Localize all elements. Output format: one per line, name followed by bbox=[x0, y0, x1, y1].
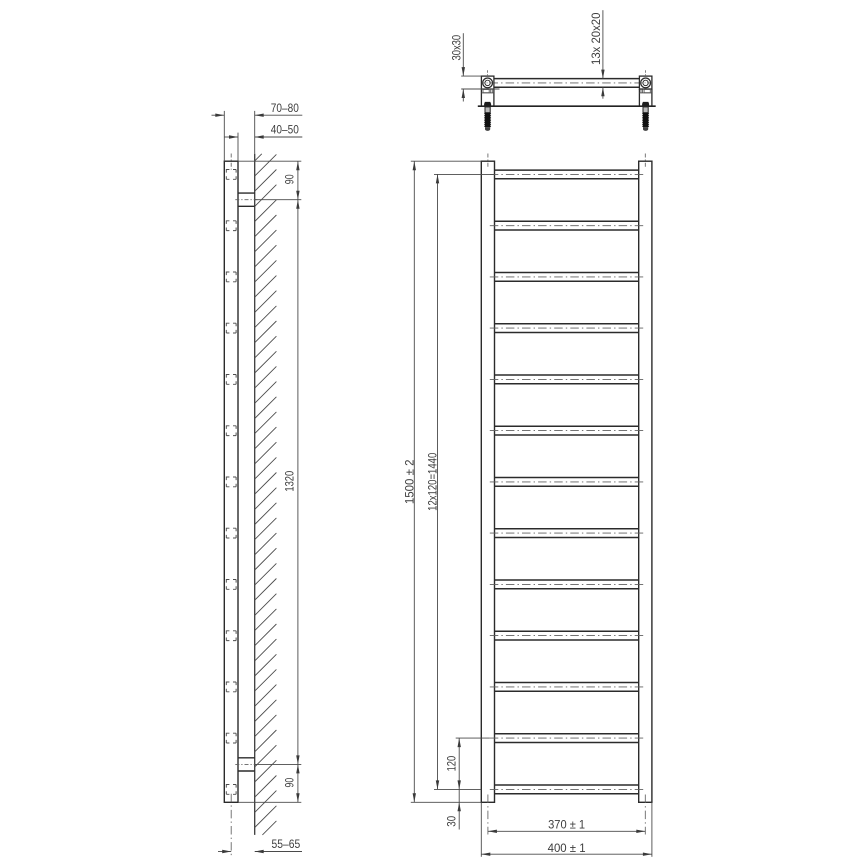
svg-text:70–80: 70–80 bbox=[271, 102, 299, 115]
svg-text:1320: 1320 bbox=[283, 471, 296, 492]
svg-text:120: 120 bbox=[446, 756, 459, 772]
svg-text:90: 90 bbox=[283, 174, 296, 184]
svg-text:30x30: 30x30 bbox=[450, 35, 463, 61]
svg-text:400 ± 1: 400 ± 1 bbox=[548, 842, 586, 855]
svg-text:12x120=1440: 12x120=1440 bbox=[427, 453, 440, 511]
svg-text:55–65: 55–65 bbox=[272, 838, 301, 851]
svg-text:30: 30 bbox=[446, 816, 459, 827]
svg-text:13x 20x20: 13x 20x20 bbox=[590, 13, 603, 65]
svg-text:90: 90 bbox=[283, 778, 296, 788]
svg-text:40–50: 40–50 bbox=[271, 124, 299, 137]
svg-text:1500 ± 2: 1500 ± 2 bbox=[403, 460, 416, 505]
svg-text:370 ± 1: 370 ± 1 bbox=[548, 818, 585, 831]
